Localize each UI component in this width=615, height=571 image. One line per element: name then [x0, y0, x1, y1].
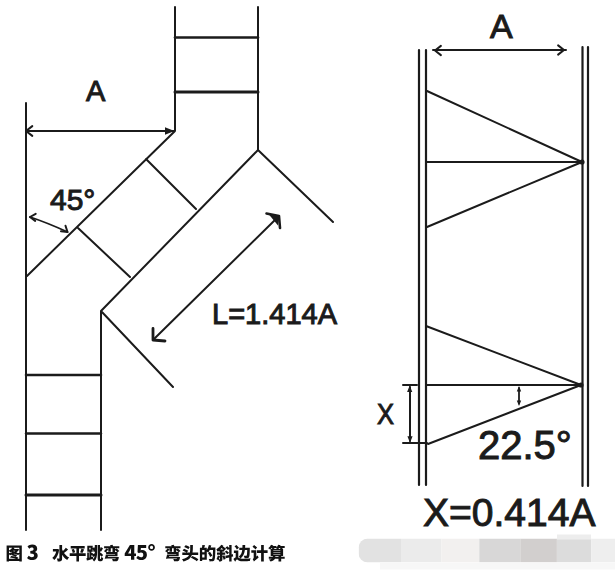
svg-text:22.5°: 22.5°: [478, 423, 572, 467]
svg-text:A: A: [86, 75, 106, 107]
svg-text:A: A: [490, 7, 513, 45]
svg-text:X: X: [377, 397, 394, 430]
svg-text:L=1.414A: L=1.414A: [212, 298, 338, 330]
svg-text:45°: 45°: [50, 183, 95, 216]
svg-text:X=0.414A: X=0.414A: [423, 491, 595, 534]
